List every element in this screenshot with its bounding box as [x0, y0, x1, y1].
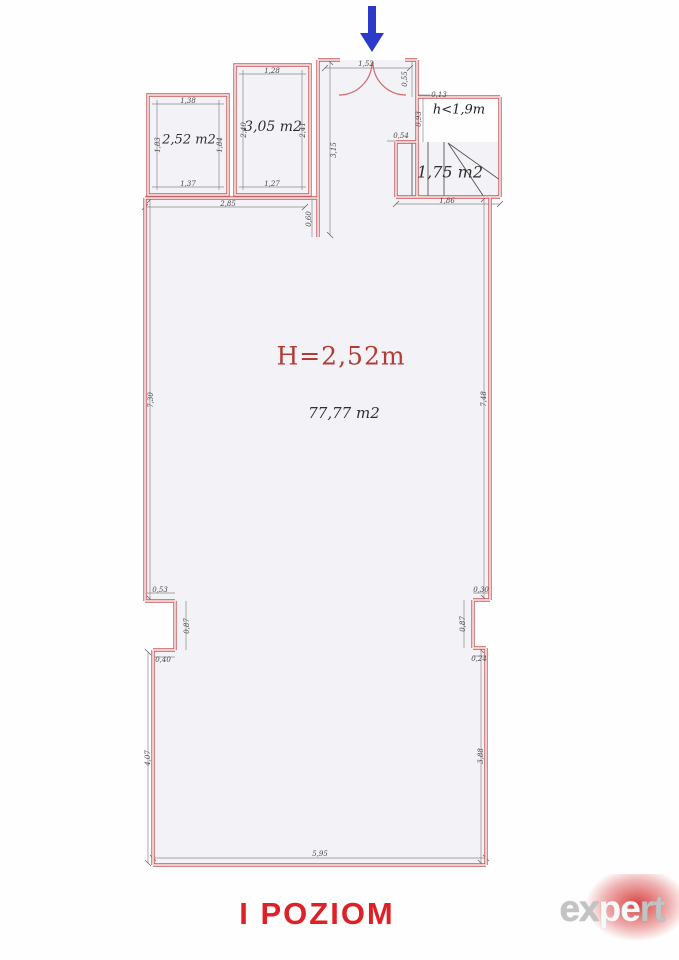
- dim-lowroom-top: 0,13: [431, 91, 447, 99]
- dim-room305-bottom: 1,27: [264, 180, 280, 188]
- dim-room305-right: 2,41: [299, 122, 307, 138]
- logo-text-left: ex: [559, 888, 598, 929]
- expert-logo: expert: [545, 876, 679, 940]
- dim-notchL-side: 0,87: [183, 618, 191, 634]
- dim-notchR-side: 0,87: [459, 616, 467, 632]
- dim-room252-left: 1,83: [154, 137, 162, 153]
- dim-stairs-bottom: 1,86: [439, 197, 455, 205]
- dim-room252-top: 1,38: [180, 97, 196, 105]
- dim-main-bottom: 5,95: [312, 850, 328, 858]
- dim-notchL-top: 0,53: [152, 586, 168, 594]
- low-headroom-label: h<1,9m: [433, 103, 485, 118]
- logo-text: expert: [559, 890, 664, 927]
- dim-main-top: 2,85: [220, 200, 236, 208]
- dim-lowroom-offset: 0,54: [393, 132, 409, 140]
- dim-main-left: 7,30: [147, 392, 155, 408]
- dim-lower-left: 4,07: [144, 750, 152, 766]
- main-area-label: 77,77 m2: [308, 404, 379, 422]
- entrance-arrow-icon: [360, 6, 384, 52]
- dim-notchL-bottom: 0,40: [155, 656, 171, 664]
- dim-room305-top: 1,28: [264, 67, 280, 75]
- dim-lowroom-left: 0,93: [415, 111, 423, 127]
- logo-text-right: rt: [640, 888, 665, 929]
- dim-corridor-stub: 0,60: [305, 211, 313, 227]
- dim-notchR-top: 0,30: [473, 586, 489, 594]
- dim-room252-right: 1,84: [216, 137, 224, 153]
- page-title: I POZIOM: [239, 896, 395, 932]
- floor-plan-drawing: [0, 0, 679, 960]
- room305-area-label: 3,05 m2: [244, 119, 302, 135]
- dim-corridor-height: 3,15: [330, 142, 338, 158]
- stairs-area-label: 1,75 m2: [417, 163, 483, 182]
- room252-area-label: 2,52 m2: [162, 133, 216, 148]
- dim-notchR-bottom: 0,24: [471, 655, 487, 663]
- dim-entrance-door: 1,52: [358, 60, 374, 68]
- main-height-label: H=2,52m: [276, 342, 405, 371]
- dim-entrance-right: 0,55: [401, 71, 409, 87]
- dim-main-right: 7,48: [480, 391, 488, 407]
- logo-text-mid: pe: [599, 888, 640, 929]
- dim-room252-bottom: 1,37: [180, 180, 196, 188]
- dim-lower-right: 3,88: [477, 748, 485, 764]
- dim-room305-left: 2,40: [240, 122, 248, 138]
- floorplan-page: 1,52 0,55 0,13 0,93 0,54 h<1,9m 1,75 m2 …: [0, 0, 679, 960]
